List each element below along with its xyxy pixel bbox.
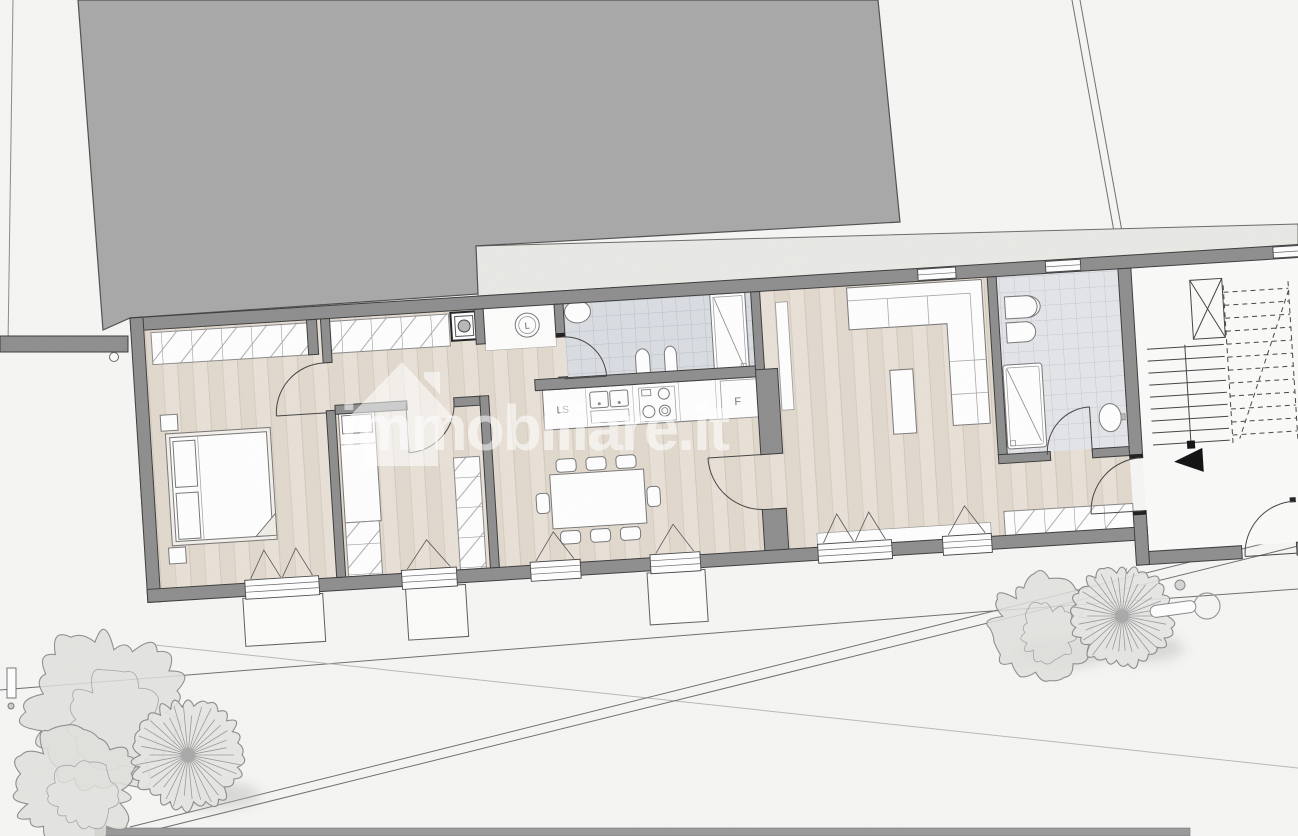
site-plan: L: [0, 0, 1298, 836]
floor-plan-canvas: L: [0, 0, 1298, 836]
paper-texture: [0, 0, 1298, 836]
